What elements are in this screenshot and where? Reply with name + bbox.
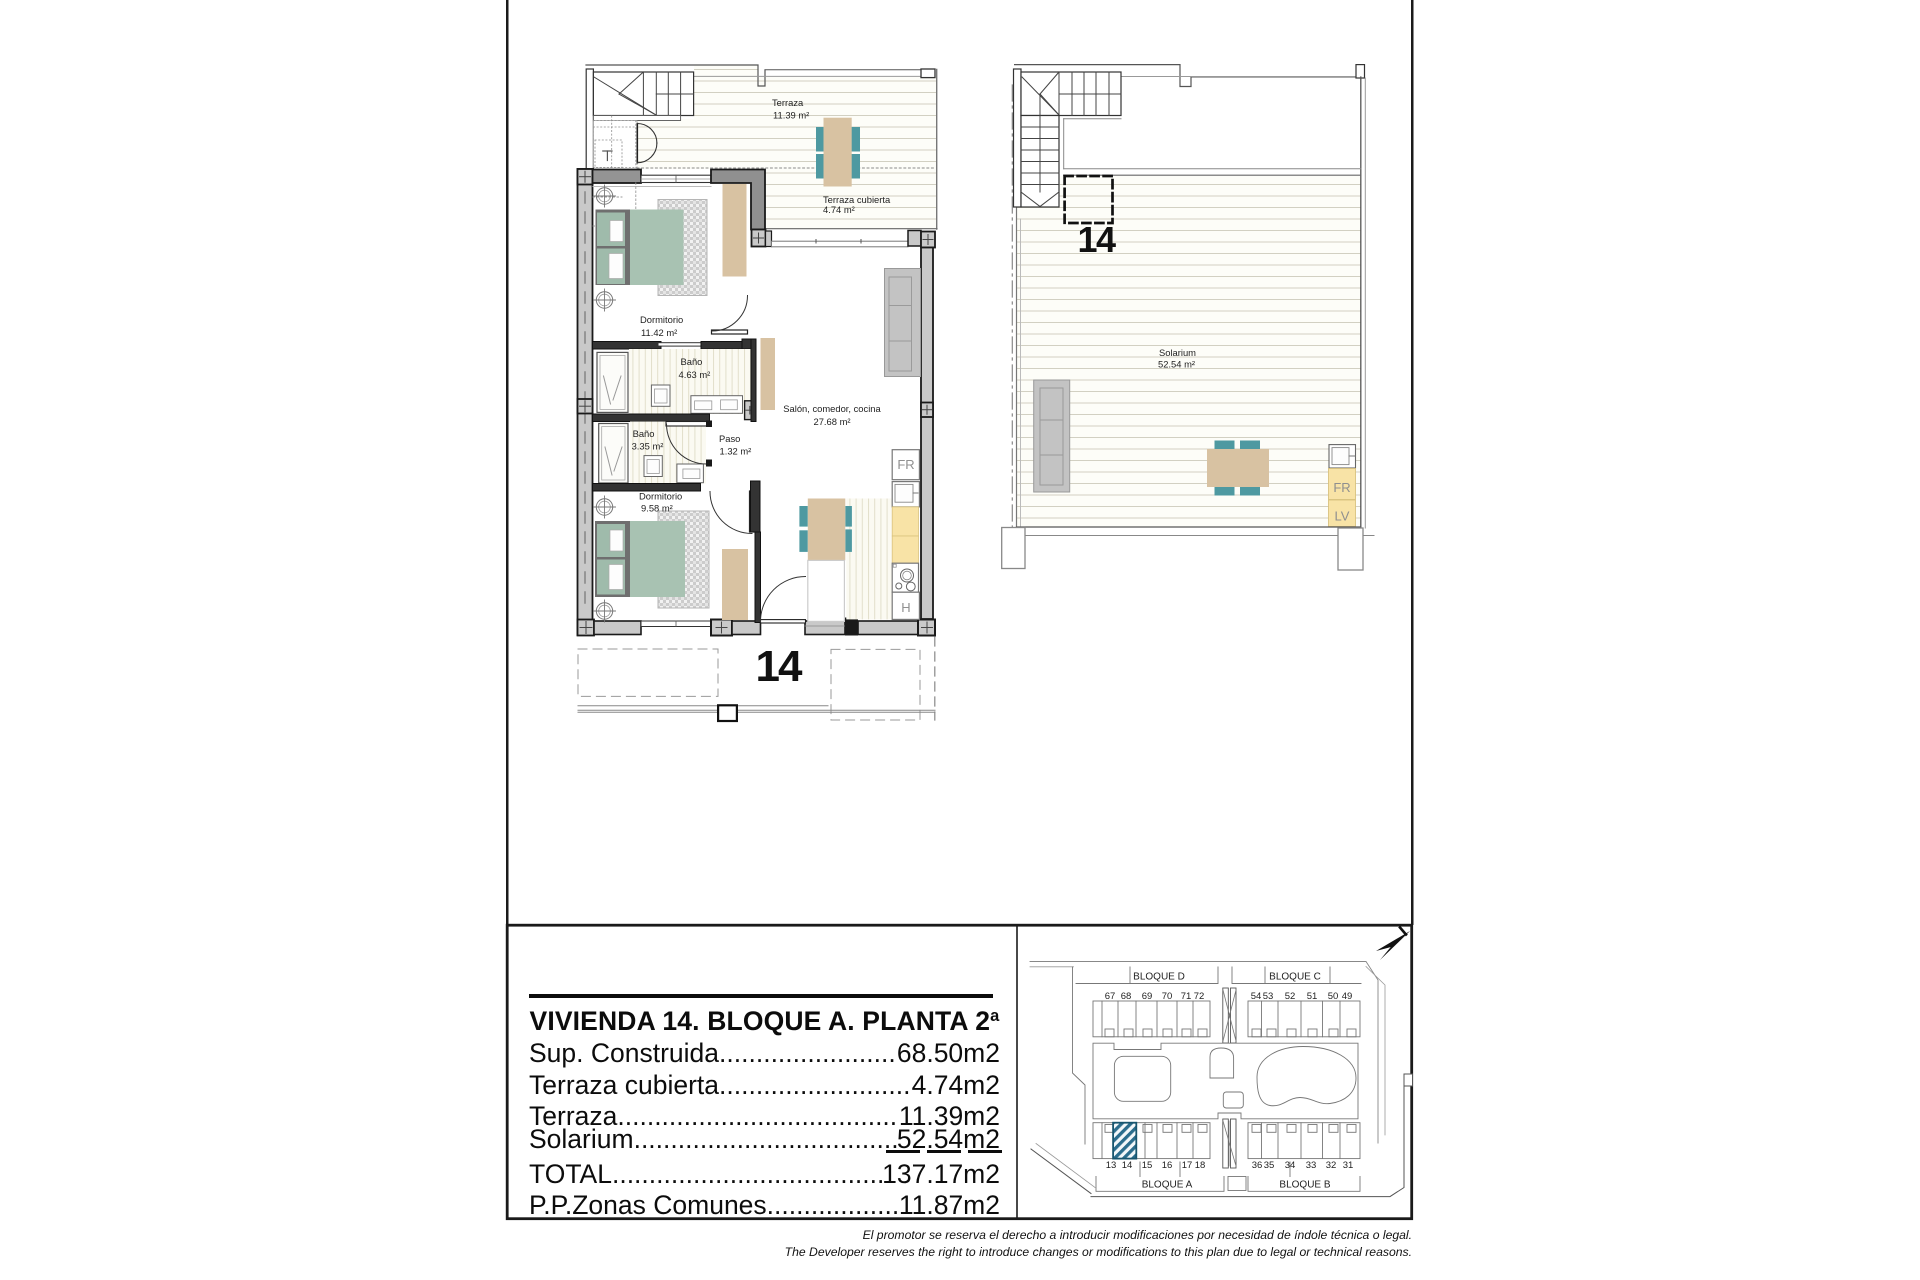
svg-text:36: 36 xyxy=(1252,1160,1263,1171)
svg-text:17: 17 xyxy=(1182,1160,1193,1171)
svg-text:69: 69 xyxy=(1142,991,1153,1002)
svg-text:33: 33 xyxy=(1306,1160,1317,1171)
svg-text:54: 54 xyxy=(1251,991,1262,1002)
svg-text:BLOQUE D: BLOQUE D xyxy=(1133,972,1185,983)
svg-text:70: 70 xyxy=(1162,991,1173,1002)
svg-text:49: 49 xyxy=(1342,991,1353,1002)
svg-text:14: 14 xyxy=(1122,1160,1133,1171)
svg-text:31: 31 xyxy=(1343,1160,1354,1171)
svg-text:67: 67 xyxy=(1105,991,1116,1002)
svg-text:68: 68 xyxy=(1121,991,1132,1002)
svg-text:16: 16 xyxy=(1162,1160,1173,1171)
svg-text:51: 51 xyxy=(1307,991,1318,1002)
svg-text:15: 15 xyxy=(1142,1160,1153,1171)
svg-text:18: 18 xyxy=(1195,1160,1206,1171)
svg-text:32: 32 xyxy=(1326,1160,1337,1171)
svg-text:53: 53 xyxy=(1263,991,1274,1002)
svg-text:BLOQUE A: BLOQUE A xyxy=(1142,1180,1193,1191)
svg-text:50: 50 xyxy=(1328,991,1339,1002)
svg-text:BLOQUE C: BLOQUE C xyxy=(1269,972,1321,983)
svg-text:35: 35 xyxy=(1264,1160,1275,1171)
svg-text:BLOQUE B: BLOQUE B xyxy=(1279,1180,1330,1191)
svg-text:71: 71 xyxy=(1181,991,1192,1002)
svg-text:72: 72 xyxy=(1194,991,1205,1002)
svg-text:52: 52 xyxy=(1285,991,1296,1002)
svg-text:13: 13 xyxy=(1106,1160,1117,1171)
